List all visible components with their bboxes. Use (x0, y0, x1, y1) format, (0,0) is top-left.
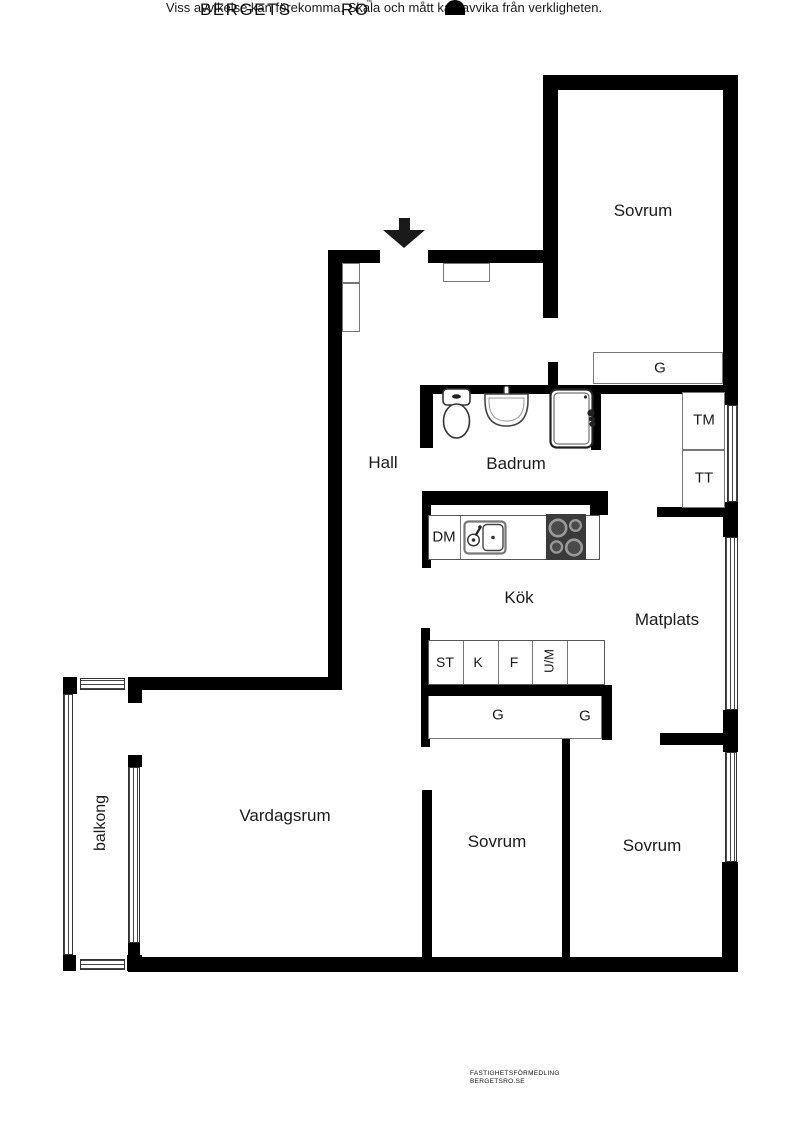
hall-wardrobe-top (443, 263, 490, 282)
room-label-badrum: Badrum (486, 454, 546, 474)
balcony-post-topleft (63, 677, 77, 694)
wall-cabinet-bottom (427, 685, 603, 696)
logo-caption-line2: BERGETSRO.SE (470, 1078, 560, 1086)
cabinet-divider-3 (532, 641, 533, 684)
wall-bottom (128, 957, 738, 972)
kitchen-sink-icon (463, 520, 507, 555)
toilet-icon (440, 388, 474, 440)
entrance-arrow (383, 218, 425, 248)
label-garderob-right: G (579, 708, 591, 725)
wall-kok-corner (590, 505, 608, 515)
room-label-matplats: Matplats (635, 610, 699, 630)
room-label-sovrum-top: Sovrum (614, 201, 673, 221)
label-ugn-micro: U/M (542, 649, 557, 673)
label-garderob-left: G (492, 707, 504, 724)
balcony-rail-bottom (80, 959, 125, 970)
balcony-rail-left (63, 694, 73, 955)
cabinet-divider-2 (498, 641, 499, 684)
wall-kok-top (422, 491, 608, 505)
wall-hall-left (328, 250, 342, 690)
brand-word-bergets: BERGETS (200, 0, 292, 20)
shower-icon (549, 388, 597, 450)
room-label-vardagsrum: Vardagsrum (239, 806, 330, 826)
wall-right-mid-b (723, 710, 738, 752)
label-torktumlare: TT (695, 470, 713, 487)
stove-icon (546, 514, 586, 560)
balcony-post-bottomright (127, 955, 142, 971)
wall-sovrum-top (543, 75, 738, 90)
balcony-post-topright (128, 688, 142, 703)
room-label-kok: Kök (504, 588, 533, 608)
label-frys: F (510, 654, 519, 670)
cabinet-divider-1 (463, 641, 464, 684)
label-garderob-top: G (654, 360, 666, 377)
label-diskmaskin: DM (432, 529, 455, 546)
room-label-sovrum-mid: Sovrum (468, 832, 527, 852)
wall-vardagsrum-right (422, 790, 432, 958)
balcony-rail-top (80, 678, 125, 690)
balcony-door-jamb-top (128, 755, 142, 767)
wall-vardagsrum-top (128, 677, 342, 690)
trademark-symbol: ™ (366, 0, 372, 6)
wall-bedroom-divider (562, 737, 570, 972)
floorplan-page: Sovrum Hall Badrum Kök Matplats Vardagsr… (0, 0, 800, 1131)
room-label-sovrum-right: Sovrum (623, 836, 682, 856)
brand-logo (445, 0, 465, 15)
window-vardagsrum-balcony (128, 767, 140, 943)
label-kyl: K (473, 654, 482, 670)
wall-garderob-right (602, 685, 612, 740)
wall-entrance-right (428, 250, 543, 263)
room-label-hall: Hall (368, 453, 397, 473)
wall-right-upper (723, 75, 738, 405)
washbasin-icon (483, 385, 531, 431)
wall-right-mid-a (723, 502, 738, 537)
window-right-sovrum (725, 752, 737, 862)
logo-caption-line1: FASTIGHETSFÖRMEDLING (470, 1070, 560, 1078)
window-right-matplats (725, 537, 738, 710)
garderob-bottom-box (428, 696, 602, 739)
wall-sovrum-left (543, 75, 558, 318)
wall-laundry-stub (657, 507, 727, 517)
label-stad: ST (436, 654, 454, 670)
wall-badrum-left (420, 385, 433, 448)
balcony-post-bottomleft (63, 955, 76, 971)
hall-wardrobe-left-2 (342, 283, 360, 332)
cabinet-divider-4 (567, 641, 568, 684)
logo-caption: FASTIGHETSFÖRMEDLING BERGETSRO.SE (470, 1070, 560, 1086)
window-right-laundry (727, 405, 738, 502)
disclaimer-text: Viss avvikelse kan förekomma. Skala och … (0, 0, 768, 15)
label-tvattmaskin: TM (693, 412, 715, 429)
wall-right-lower (722, 862, 738, 972)
counter-divider (460, 516, 461, 559)
wall-sovrum-right-top (660, 733, 730, 745)
room-label-balkong: balkong (92, 795, 110, 851)
hall-wardrobe-left-1 (342, 263, 360, 283)
